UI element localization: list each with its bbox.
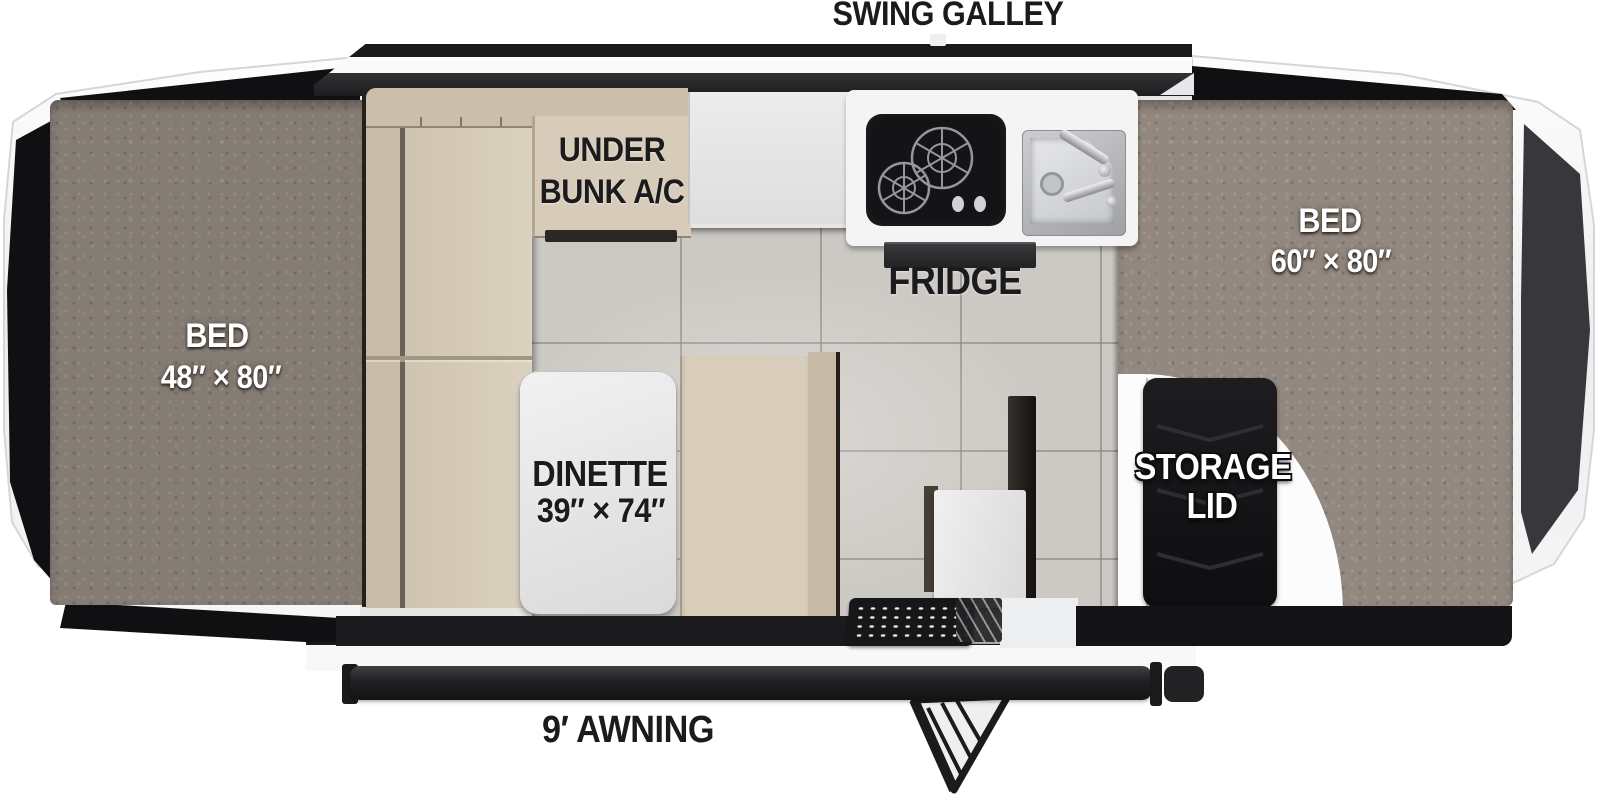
sink-drain bbox=[1040, 172, 1064, 196]
dinette-label-line2: 39″ × 74″ bbox=[537, 494, 665, 528]
storage-lid-label-line2: LID bbox=[1187, 488, 1238, 524]
dinette-bench-backrest bbox=[808, 352, 840, 640]
camper-floorplan: SWING GALLEY UNDER BUNK A/C FRIDGE BED 4… bbox=[0, 0, 1600, 794]
entry-threshold bbox=[1000, 598, 1078, 648]
awning-label: 9′ AWNING bbox=[542, 711, 714, 749]
awning-pin-right bbox=[1150, 662, 1162, 706]
awning-cap-right bbox=[1164, 666, 1204, 702]
faucet-knob-small bbox=[1106, 196, 1117, 207]
stove-icon bbox=[866, 114, 1006, 226]
under-bunk-label-line2: BUNK A/C bbox=[540, 175, 685, 209]
storage-lid-label-line1: STORAGE bbox=[1135, 449, 1291, 485]
rear-bed-label-line2: 60″ × 80″ bbox=[1271, 245, 1391, 277]
galley-roof-latch bbox=[930, 34, 946, 46]
sofa-seat bbox=[405, 124, 532, 608]
step-hinge-hardware bbox=[956, 598, 1002, 642]
roof-black-band bbox=[314, 44, 1192, 57]
sofa-back-left bbox=[366, 88, 402, 608]
grate-perforations bbox=[853, 604, 970, 640]
roof-white-band bbox=[306, 57, 1192, 74]
rear-bed-label-line1: BED bbox=[1298, 204, 1361, 238]
dinette-label-line1: DINETTE bbox=[532, 456, 667, 492]
ac-vent bbox=[545, 230, 677, 242]
awning-bar bbox=[350, 666, 1152, 700]
fridge-label: FRIDGE bbox=[888, 261, 1021, 301]
faucet-knob bbox=[1098, 164, 1111, 177]
door-side-cabinet bbox=[934, 490, 1026, 608]
sofa-cushion-seam bbox=[366, 356, 532, 360]
front-bed-label-line2: 48″ × 80″ bbox=[161, 361, 281, 393]
sofa-crease bbox=[400, 122, 405, 608]
burner-graphics bbox=[866, 114, 1006, 226]
floor-mat-right bbox=[1076, 606, 1512, 646]
dinette-bench-seat bbox=[680, 356, 810, 636]
swing-galley-label: SWING GALLEY bbox=[833, 0, 1064, 31]
floor-mat-left bbox=[336, 616, 852, 646]
counter-left-section bbox=[688, 92, 850, 224]
front-bed-label-line1: BED bbox=[185, 319, 248, 353]
under-bunk-label-line1: UNDER bbox=[559, 133, 666, 167]
